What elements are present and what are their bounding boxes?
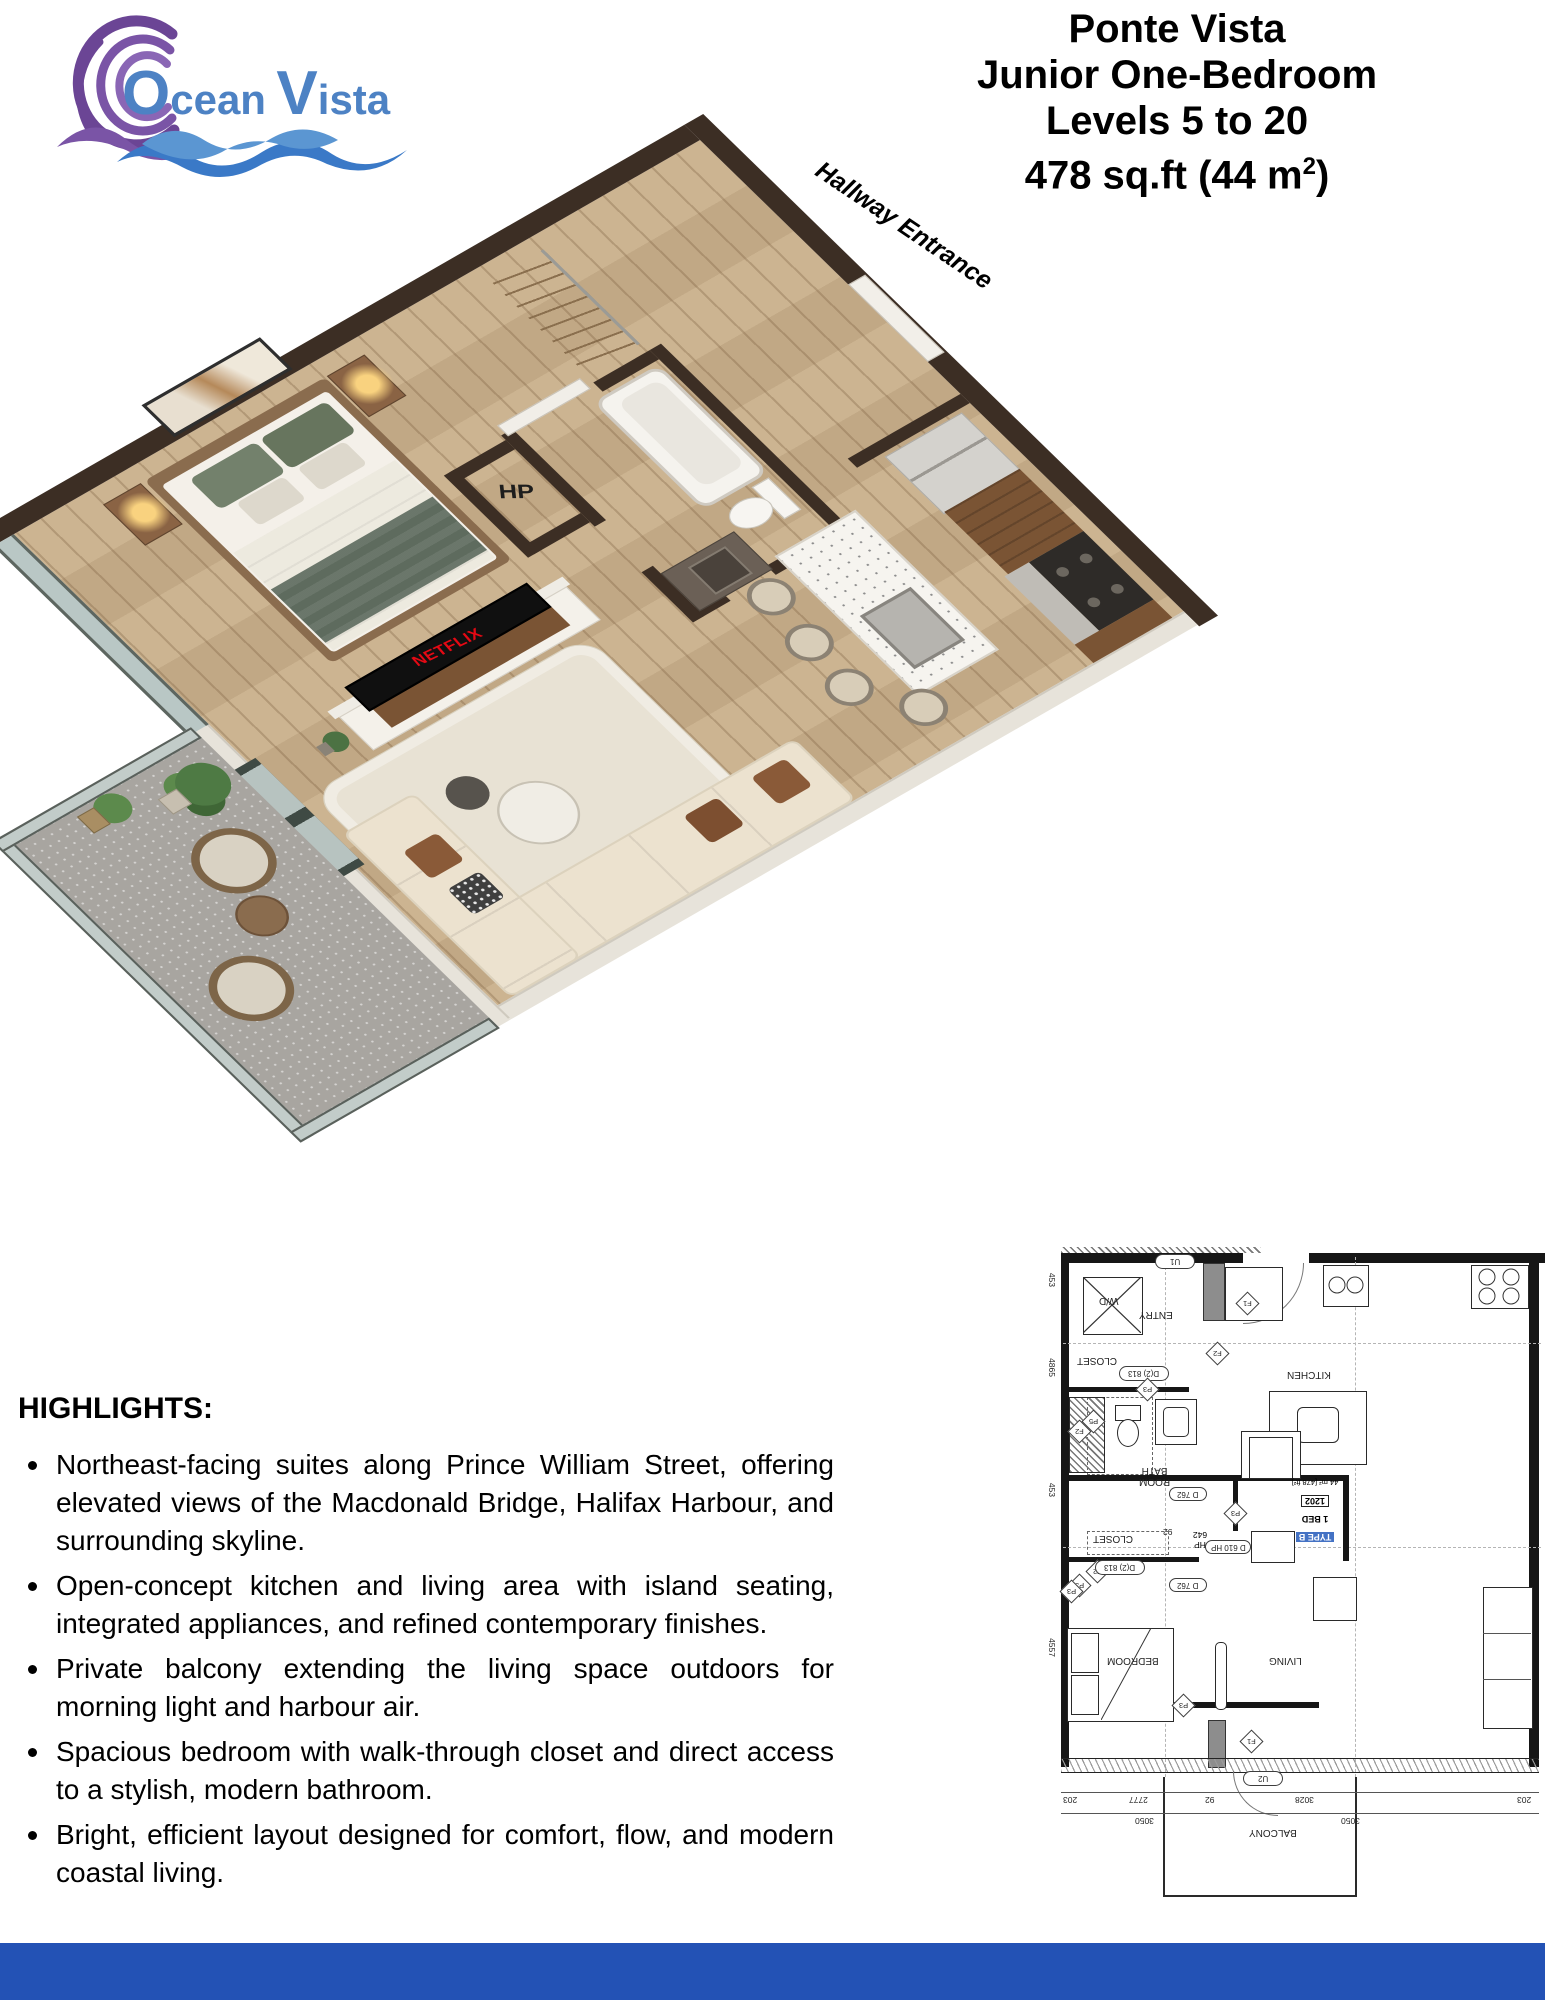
plan2d-bedroom-label: BEDROOM — [1107, 1655, 1159, 1666]
plan2d-shower-inner — [1249, 1437, 1293, 1479]
plan2d-living-label: LIVING — [1269, 1655, 1302, 1666]
plan2d-dim: 3050 — [1341, 1816, 1360, 1826]
plan2d-fridge-gray — [1203, 1263, 1225, 1321]
logo-text: Ocean Vista — [122, 59, 391, 128]
highlight-item: Northeast-facing suites along Prince Wil… — [18, 1446, 834, 1560]
title-line-area: 478 sq.ft (44 m2) — [817, 144, 1537, 198]
plan2d-kitchen-label: KITCHEN — [1287, 1369, 1331, 1380]
plan2d-wall — [1343, 1481, 1349, 1561]
technical-floor-plan: W/D ENTRY U1 F1 F2 KITCHEN CLOSET D(2) 8… — [1043, 1247, 1545, 1915]
plan2d-unit-stamp: TYPE B1 BED120244 m² [478 ft²] — [1289, 1475, 1341, 1547]
plan2d-f1-diamond: F1 — [1239, 1729, 1263, 1753]
plan2d-d610-tag: D 610 HP — [1205, 1540, 1251, 1554]
plan2d-dim-left: 453 — [1047, 1483, 1057, 1497]
plan2d-dim: 203 — [1063, 1795, 1077, 1805]
highlight-item: Open-concept kitchen and living area wit… — [18, 1567, 834, 1643]
plan2d-sofa-line — [1483, 1679, 1531, 1680]
plan2d-u1-tag: U1 — [1155, 1254, 1195, 1269]
plan2d-wd-label: W/D — [1099, 1295, 1118, 1306]
ocean-vista-logo-graphic: Ocean Vista — [22, 12, 422, 182]
highlight-item: Spacious bedroom with walk-through close… — [18, 1733, 834, 1809]
ocean-vista-logo: Ocean Vista — [22, 12, 422, 182]
highlights-heading: HIGHLIGHTS: — [18, 1392, 213, 1426]
highlight-item: Private balcony extending the living spa… — [18, 1650, 834, 1726]
plan2d-hatch-band — [1061, 1247, 1261, 1253]
plan2d-balcony-label: BALCONY — [1249, 1827, 1297, 1838]
plan2d-f2-diamond: F2 — [1205, 1341, 1229, 1365]
plan2d-d2813-tag: D(2) 813 — [1095, 1560, 1145, 1575]
plan2d-dimline — [1061, 1792, 1539, 1793]
plan2d-d762-tag: D 762 — [1169, 1578, 1207, 1592]
plan2d-dim: 3050 — [1135, 1816, 1154, 1826]
highlights-list: Northeast-facing suites along Prince Wil… — [18, 1446, 834, 1899]
footer-accent-bar — [0, 1943, 1545, 2000]
plan2d-closet-label: CLOSET — [1077, 1355, 1117, 1366]
plan2d-bed-pillow — [1071, 1675, 1099, 1715]
plan2d-toilet-bowl — [1117, 1419, 1139, 1447]
page-title: Ponte Vista Junior One-Bedroom Levels 5 … — [817, 6, 1537, 198]
plan2d-bed-pillow — [1071, 1633, 1099, 1673]
plan2d-wall — [1069, 1387, 1189, 1392]
plan2d-sink-circles — [1323, 1265, 1367, 1305]
plan2d-sofa — [1483, 1587, 1533, 1729]
plan2d-dim: 2777 — [1129, 1795, 1148, 1805]
plan2d-d762-tag: D 762 — [1169, 1487, 1207, 1501]
title-line-project: Ponte Vista — [817, 6, 1537, 52]
plan2d-d2813-tag: D(2) 813 — [1119, 1366, 1169, 1381]
plan2d-dim-left: 4557 — [1047, 1638, 1057, 1657]
plan2d-dim-left: 4865 — [1047, 1358, 1057, 1377]
isometric-floor-plan: NETFLIX HP — [14, 140, 1184, 1005]
title-line-levels: Levels 5 to 20 — [817, 98, 1537, 144]
plan2d-gridline — [1063, 1343, 1541, 1344]
title-line-unit-type: Junior One-Bedroom — [817, 52, 1537, 98]
plan2d-kitchen-cabinet — [1225, 1267, 1283, 1321]
plan2d-p3-diamond: P3 — [1171, 1693, 1195, 1717]
plan2d-entry-label: ENTRY — [1139, 1309, 1173, 1320]
plan2d-dimline — [1061, 1813, 1539, 1814]
plan2d-closet2-label: CLOSET — [1093, 1533, 1133, 1544]
plan2d-sofa-line — [1483, 1633, 1531, 1634]
hp-closet-label: HP — [498, 482, 536, 505]
plan2d-gridline — [1355, 1257, 1356, 1777]
plan2d-bathroom-label: ROOMBATH — [1139, 1465, 1170, 1487]
plan2d-island-sink — [1297, 1407, 1339, 1443]
plan2d-chair-box — [1313, 1577, 1357, 1621]
plan2d-p3-diamond: P3 — [1223, 1501, 1247, 1525]
plan2d-bed-fold — [1101, 1628, 1172, 1720]
plan2d-tv — [1215, 1642, 1227, 1710]
plan2d-dim: 203 — [1517, 1795, 1531, 1805]
plan2d-dim-left: 453 — [1047, 1273, 1057, 1287]
plan2d-bath-sink — [1163, 1407, 1189, 1437]
plan2d-dim: 92 — [1205, 1795, 1214, 1805]
plan2d-entry-gap — [1243, 1253, 1309, 1263]
plan2d-stove-burners — [1471, 1265, 1527, 1307]
plan2d-dim: 3028 — [1295, 1795, 1314, 1805]
highlight-item: Bright, efficient layout designed for co… — [18, 1816, 834, 1892]
plan2d-window-band — [1061, 1758, 1539, 1773]
